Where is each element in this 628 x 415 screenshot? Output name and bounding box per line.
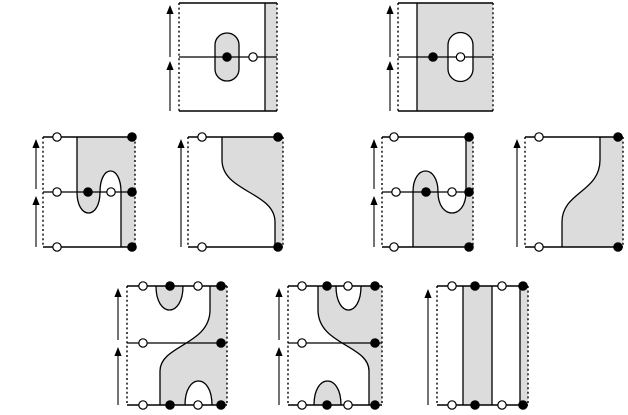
open-dot [344,401,352,409]
filled-dot [274,133,282,141]
filled-dot [274,243,282,251]
open-dot [139,401,147,409]
filled-dot [217,401,225,409]
open-dot [194,282,202,290]
up-arrow [32,196,39,247]
arrowhead-icon [166,61,173,70]
filled-dot [465,243,473,251]
open-dot [139,339,147,347]
up-arrow [177,139,184,247]
arrowhead-icon [370,196,377,205]
up-arrow [370,196,377,247]
panel-bottom-2-s-with-cup-cap-mirrored [275,282,382,409]
panel-top-right-white-capsule [386,3,493,111]
arrowhead-icon [424,289,431,298]
open-dot [498,282,506,290]
arrowhead-icon [114,347,121,356]
open-dot [298,282,306,290]
open-dot [249,53,257,61]
open-dot [194,401,202,409]
up-arrow [114,288,121,340]
open-dot [535,243,543,251]
arrowhead-icon [275,288,282,297]
arrowhead-icon [275,347,282,356]
open-dot [53,188,61,196]
up-arrow [275,288,282,340]
filled-dot [465,188,473,196]
filled-dot [519,401,527,409]
filled-dot [323,282,331,290]
up-arrow [275,347,282,405]
filled-dot [217,339,225,347]
arrowhead-icon [513,139,520,148]
panel-top-left-dotted-capsule [166,3,277,111]
up-arrow [370,139,377,189]
shaded-region [562,137,623,247]
open-dot [139,282,147,290]
arrowhead-icon [114,288,121,297]
shaded-region [463,286,492,405]
arrowhead-icon [166,5,173,14]
open-dot [198,243,206,251]
open-dot [53,133,61,141]
open-dot [298,339,306,347]
shaded-region [222,137,283,247]
open-dot [298,401,306,409]
open-dot [53,243,61,251]
filled-dot [323,401,331,409]
open-dot [448,401,456,409]
open-dot [344,282,352,290]
open-dot [448,188,456,196]
filled-dot [84,188,92,196]
filled-dot [371,401,379,409]
filled-dot [371,339,379,347]
filled-dot [465,133,473,141]
up-arrow [424,289,431,405]
panel-middle-2-s-curve [177,133,283,251]
filled-dot [614,133,622,141]
filled-dot [166,282,174,290]
cobordism-figure [0,0,628,415]
filled-dot [429,53,437,61]
panel-middle-4-reverse-s-curve [513,133,623,251]
up-arrow [114,347,121,405]
arrowhead-icon [32,139,39,148]
filled-dot [614,243,622,251]
arrowhead-icon [32,196,39,205]
panel-middle-1-snake-cup-cap [32,133,136,251]
panel-bottom-1-s-with-cup-cap [114,282,227,409]
filled-dot [471,282,479,290]
open-dot [107,188,115,196]
up-arrow [166,61,173,111]
up-arrow [166,5,173,57]
panel-middle-3-snake-cap-cup [370,133,473,251]
open-dot [390,243,398,251]
figure-canvas [0,0,628,415]
open-dot [448,282,456,290]
open-dot [498,401,506,409]
open-dot [535,133,543,141]
arrowhead-icon [386,61,393,70]
filled-dot [371,282,379,290]
up-arrow [513,139,520,247]
filled-dot [217,282,225,290]
open-dot [198,133,206,141]
open-dot [392,188,400,196]
up-arrow [386,5,393,57]
filled-dot [422,188,430,196]
filled-dot [223,53,231,61]
filled-dot [128,188,136,196]
arrowhead-icon [370,139,377,148]
arrowhead-icon [386,5,393,14]
shaded-region [520,286,528,405]
up-arrow [32,139,39,189]
up-arrow [386,61,393,111]
filled-dot [519,282,527,290]
panel-bottom-3-vertical-strips [424,282,528,409]
filled-dot [128,243,136,251]
filled-dot [471,401,479,409]
filled-dot [166,401,174,409]
filled-dot [128,133,136,141]
arrowhead-icon [177,139,184,148]
open-dot [390,133,398,141]
open-dot [456,53,464,61]
